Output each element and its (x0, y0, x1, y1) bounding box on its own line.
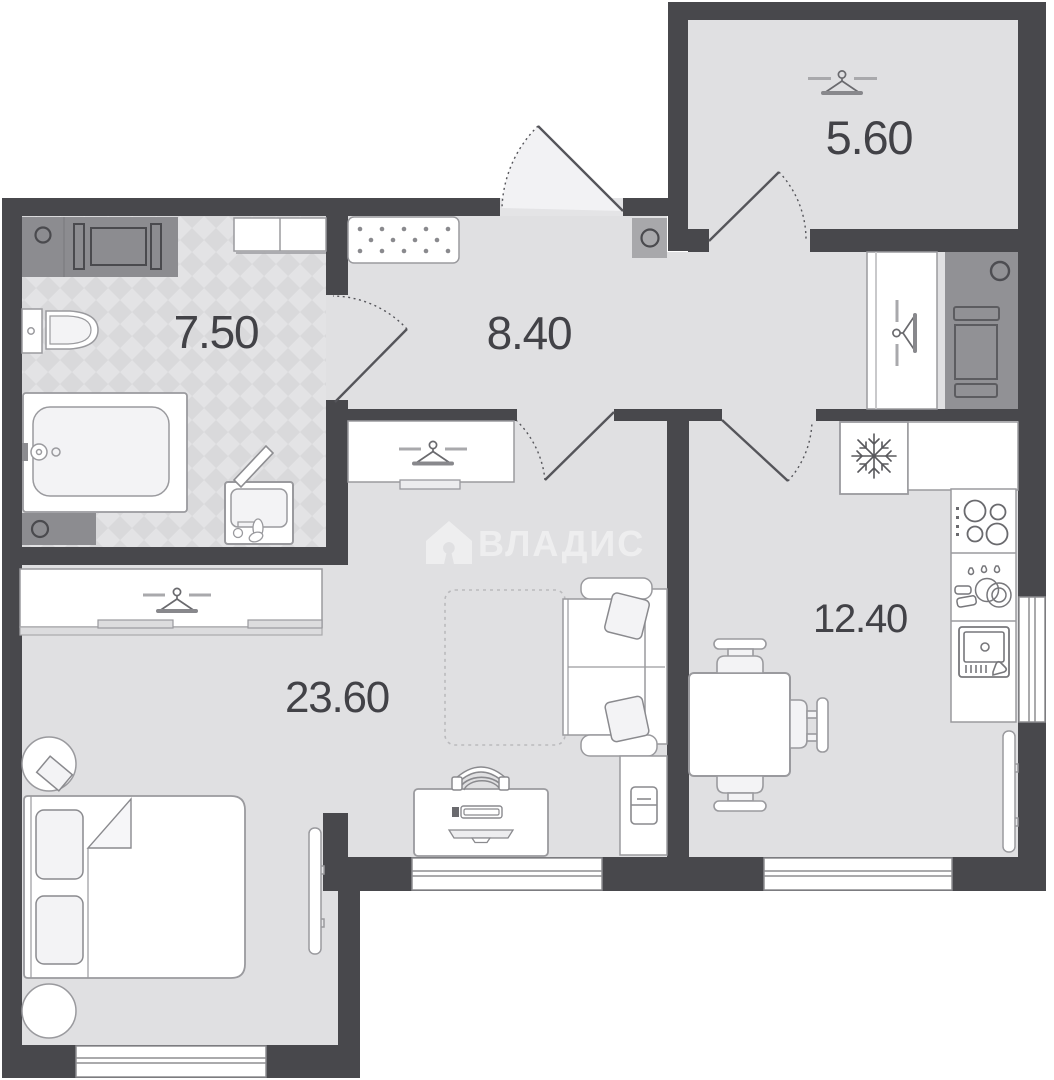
svg-text:8.40: 8.40 (487, 307, 572, 359)
svg-text:12.40: 12.40 (813, 597, 907, 641)
svg-text:ВЛАДИС: ВЛАДИС (478, 523, 645, 564)
svg-text:7.50: 7.50 (174, 306, 259, 358)
svg-text:23.60: 23.60 (285, 673, 389, 722)
svg-text:5.60: 5.60 (826, 111, 913, 164)
